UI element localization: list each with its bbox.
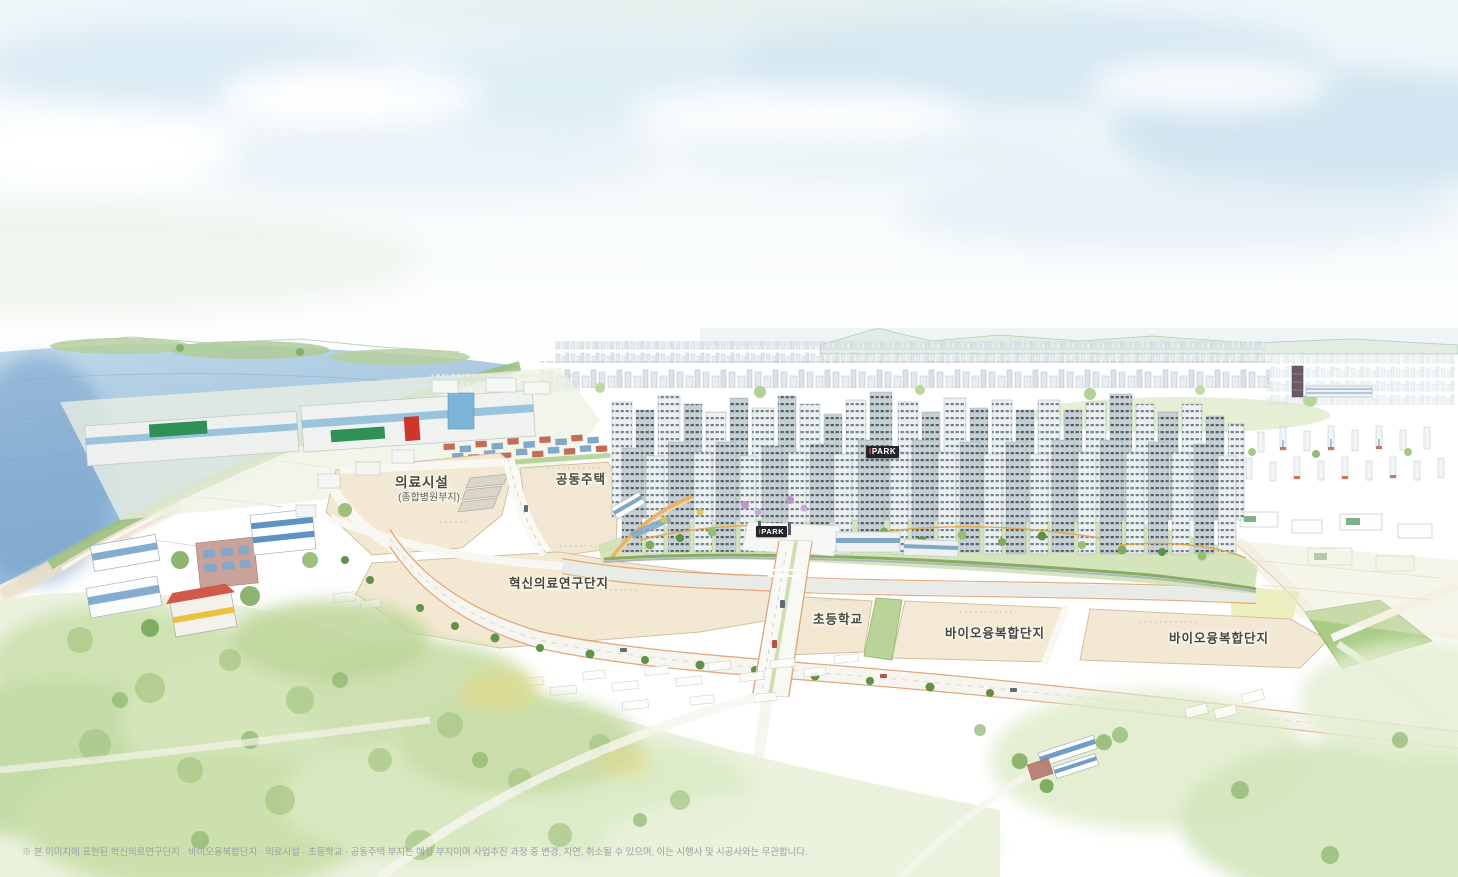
ipark-gate-sign: IPARK bbox=[756, 526, 787, 537]
label-housing-site: 공동주택 bbox=[556, 469, 606, 488]
disclaimer-text: ※ 본 이미지에 표현된 혁신의료연구단지 · 바이오융복합단지 · 의료시설 … bbox=[22, 844, 807, 858]
ipark-gate-text: PARK bbox=[761, 527, 784, 536]
label-school-site: 초등학교 bbox=[813, 609, 863, 628]
label-medical-site-sub: (종합병원부지) bbox=[398, 489, 460, 504]
ipark-sign-text: PARK bbox=[872, 447, 896, 456]
label-bio-site-2: 바이오융복합단지 bbox=[1169, 628, 1269, 647]
rendering-canvas: 의료시설 (종합병원부지) 공동주택 혁신의료연구단지 초등학교 바이오융복합단… bbox=[0, 0, 1458, 877]
label-research-site: 혁신의료연구단지 bbox=[509, 573, 609, 592]
ipark-roof-sign: IPARK bbox=[866, 446, 899, 458]
apartment-towers bbox=[612, 392, 1244, 554]
watercolor-scene bbox=[0, 0, 1458, 877]
label-bio-site-1: 바이오융복합단지 bbox=[945, 623, 1045, 642]
sky bbox=[0, 0, 1458, 370]
